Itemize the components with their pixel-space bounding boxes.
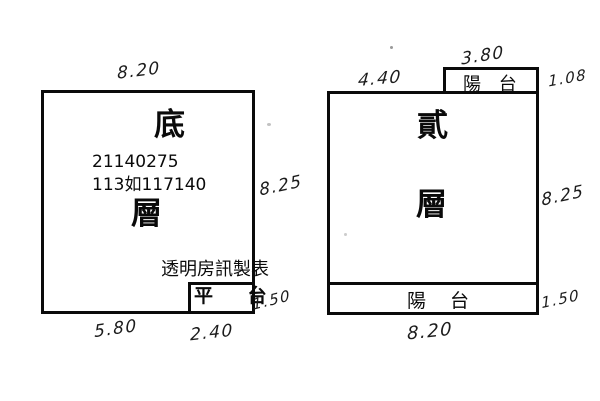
dim-left-top: 8.20 bbox=[117, 58, 161, 83]
watermark-label: 透明房訊製表 bbox=[161, 255, 269, 281]
scan-speck bbox=[390, 46, 393, 49]
bottom-balcony-label: 陽 台 bbox=[407, 286, 478, 313]
scan-speck bbox=[344, 233, 347, 236]
scan-speck bbox=[267, 123, 271, 126]
dim-balcony-top: 3.80 bbox=[461, 42, 505, 69]
floor-char-di: 底 bbox=[154, 110, 185, 141]
dim-left-bottom-left: 5.80 bbox=[94, 316, 138, 342]
floorplan-scan: 8.20 底 21140275 113如117140 層 透明房訊製表 平 台 … bbox=[0, 0, 600, 401]
dim-bottom-balcony-right: 1.50 bbox=[541, 286, 581, 312]
serial-number-2: 113如117140 bbox=[92, 174, 206, 196]
dim-left-bottom-right: 2.40 bbox=[190, 321, 234, 346]
floor-char-ceng-right: 層 bbox=[416, 190, 447, 221]
dim-right-side: 8.25 bbox=[541, 181, 585, 210]
dim-right-bottom: 8.20 bbox=[407, 319, 453, 345]
top-balcony-label: 陽 台 bbox=[463, 70, 523, 96]
floor-char-ceng-left: 層 bbox=[131, 199, 162, 230]
dim-right-top-left: 4.40 bbox=[357, 67, 402, 91]
floor-char-er: 貳 bbox=[417, 111, 448, 142]
dim-balcony-right: 1.08 bbox=[548, 65, 587, 90]
dim-left-right: 8.25 bbox=[258, 171, 303, 200]
serial-number-1: 21140275 bbox=[92, 151, 179, 173]
